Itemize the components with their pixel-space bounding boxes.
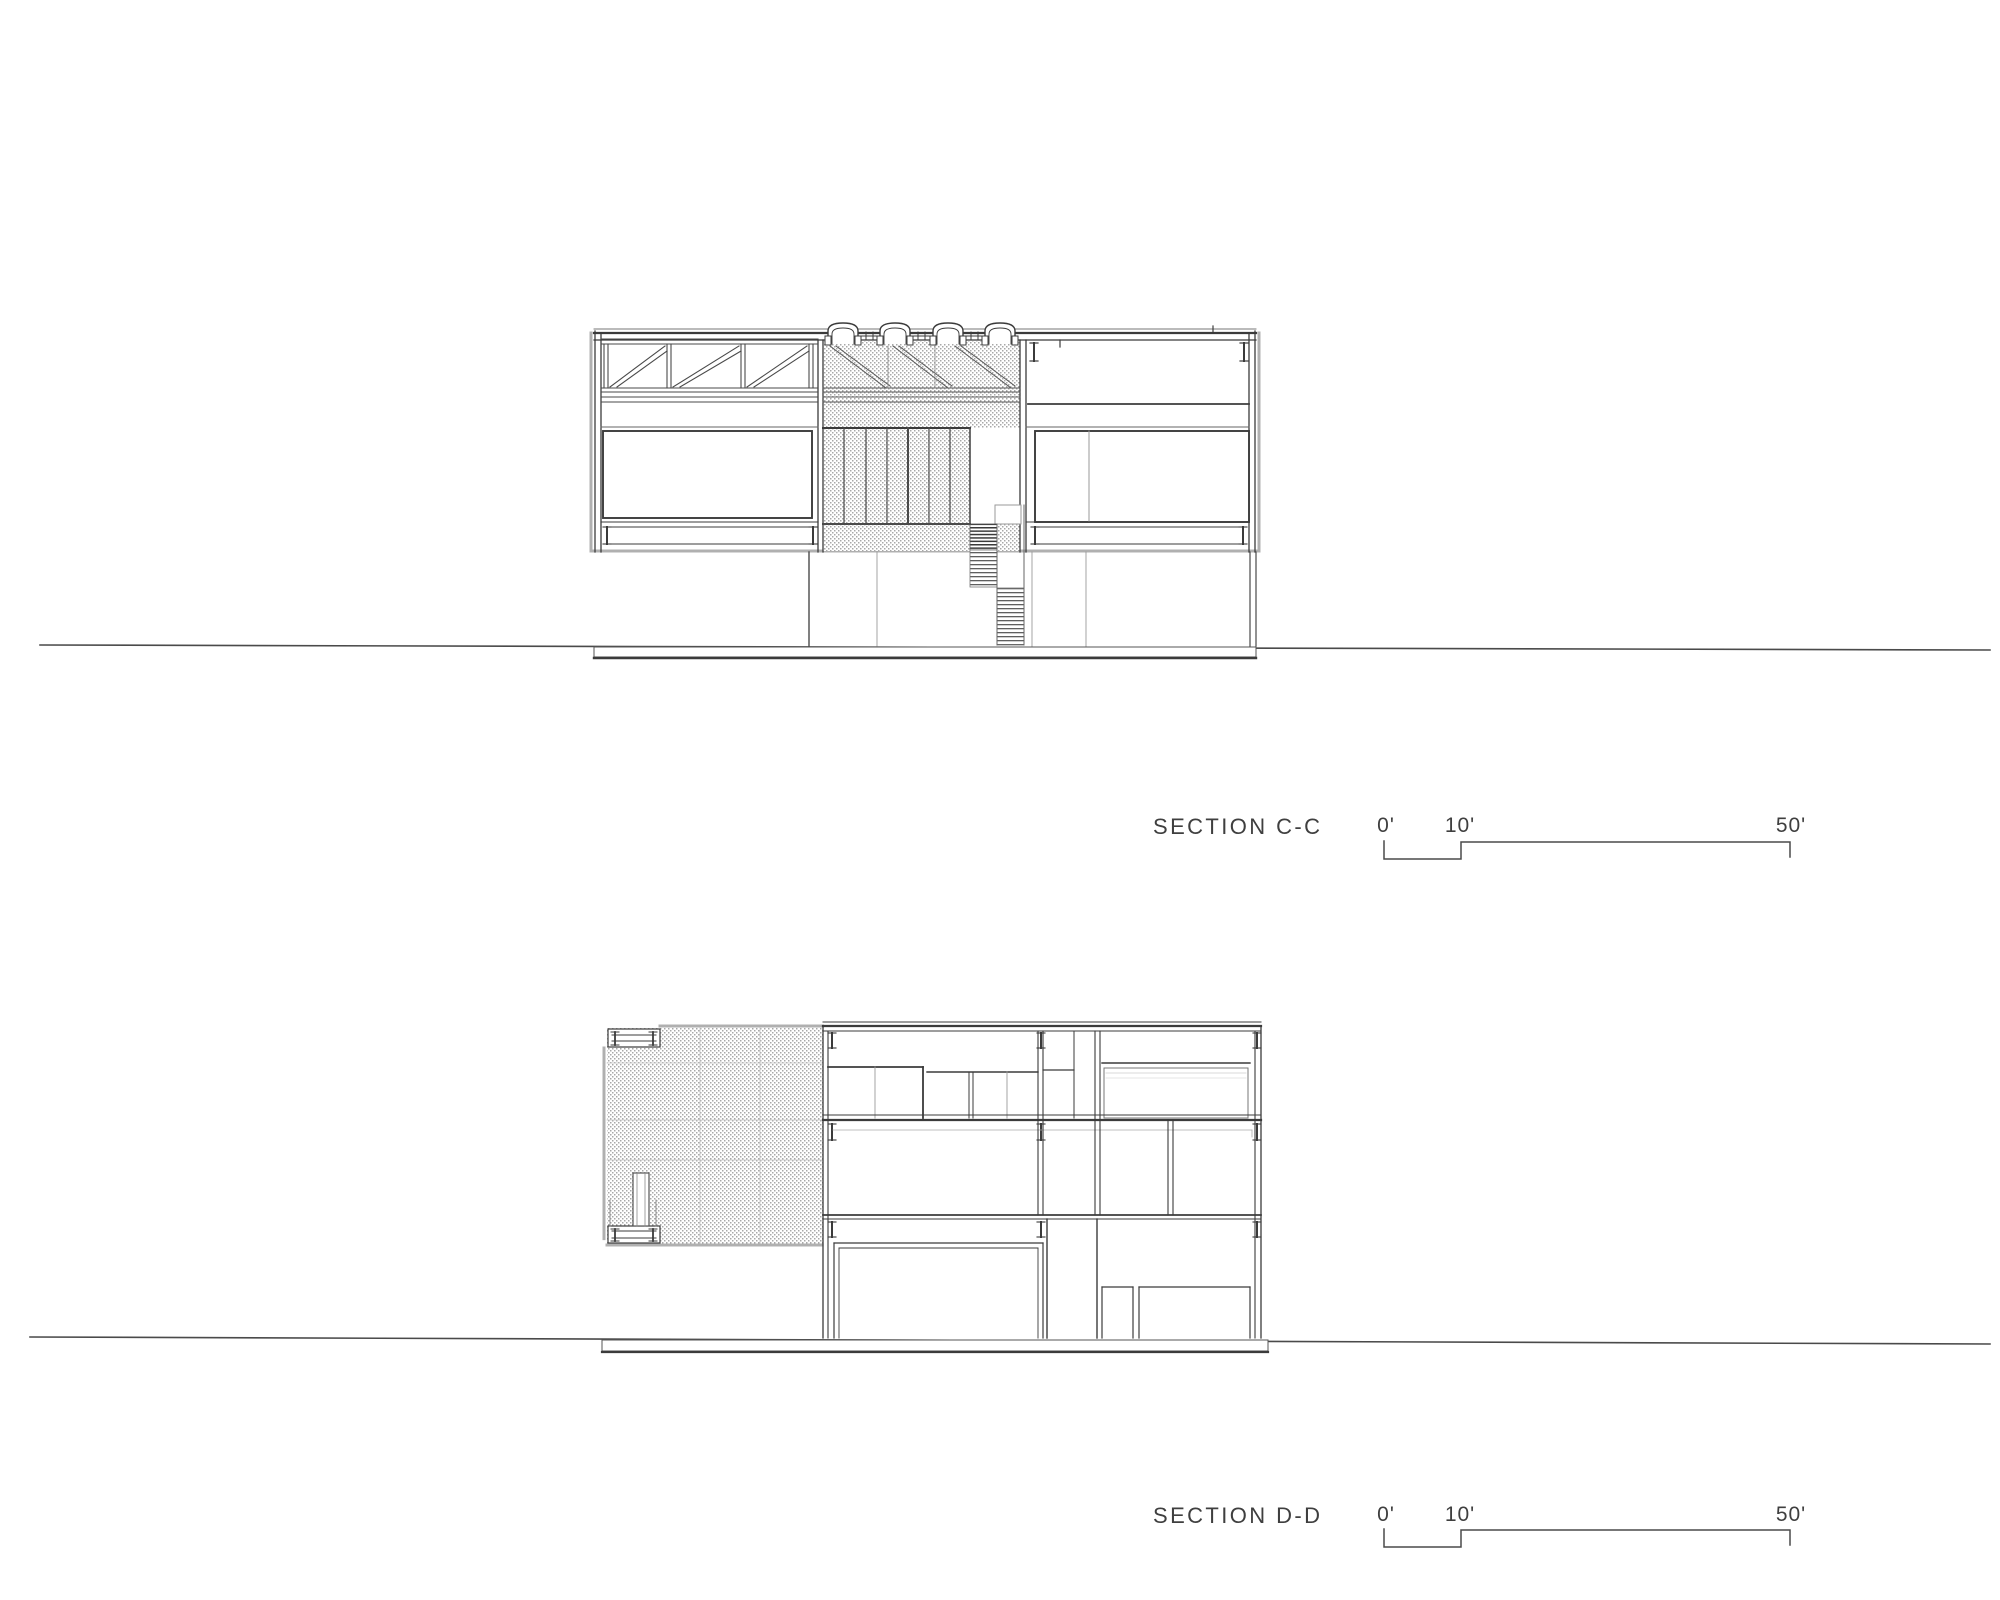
dd-scale-bar xyxy=(1384,1529,1790,1547)
sections-linework xyxy=(0,0,2000,1600)
section-cc-title: SECTION C-C xyxy=(1153,814,1322,840)
cc-scale-tick-10: 10' xyxy=(1445,814,1475,838)
dd-beam-box-bottom xyxy=(608,1226,660,1243)
cc-scale-tick-0: 0' xyxy=(1377,814,1395,838)
drawing-sheet: SECTION C-C 0' 10' 50' SECTION D-D 0' 10… xyxy=(0,0,2000,1600)
cc-scale-bar xyxy=(1384,841,1790,859)
cc-lower-level xyxy=(809,552,1256,646)
dd-foundation xyxy=(602,1340,1268,1352)
dd-scale-tick-50: 50' xyxy=(1776,1503,1806,1527)
section-cc-drawing xyxy=(40,323,1990,859)
cc-foundation xyxy=(594,647,1256,658)
dd-hatch-block xyxy=(604,1026,823,1245)
cc-truss-left xyxy=(601,339,818,402)
dd-middle-floor xyxy=(823,1120,1261,1237)
dd-scale-tick-10: 10' xyxy=(1445,1503,1475,1527)
monitor-icon xyxy=(982,323,1018,345)
monitor-icon xyxy=(825,323,861,345)
monitor-icon xyxy=(930,323,966,345)
dd-beam-box-top xyxy=(608,1029,660,1047)
monitor-icon xyxy=(877,323,913,345)
dd-scale-tick-0: 0' xyxy=(1377,1503,1395,1527)
cc-sill-line xyxy=(601,427,1249,428)
cc-scale-tick-50: 50' xyxy=(1776,814,1806,838)
dd-top-floor xyxy=(823,1031,1261,1120)
section-dd-drawing xyxy=(30,1022,1990,1547)
section-dd-title: SECTION D-D xyxy=(1153,1503,1322,1529)
